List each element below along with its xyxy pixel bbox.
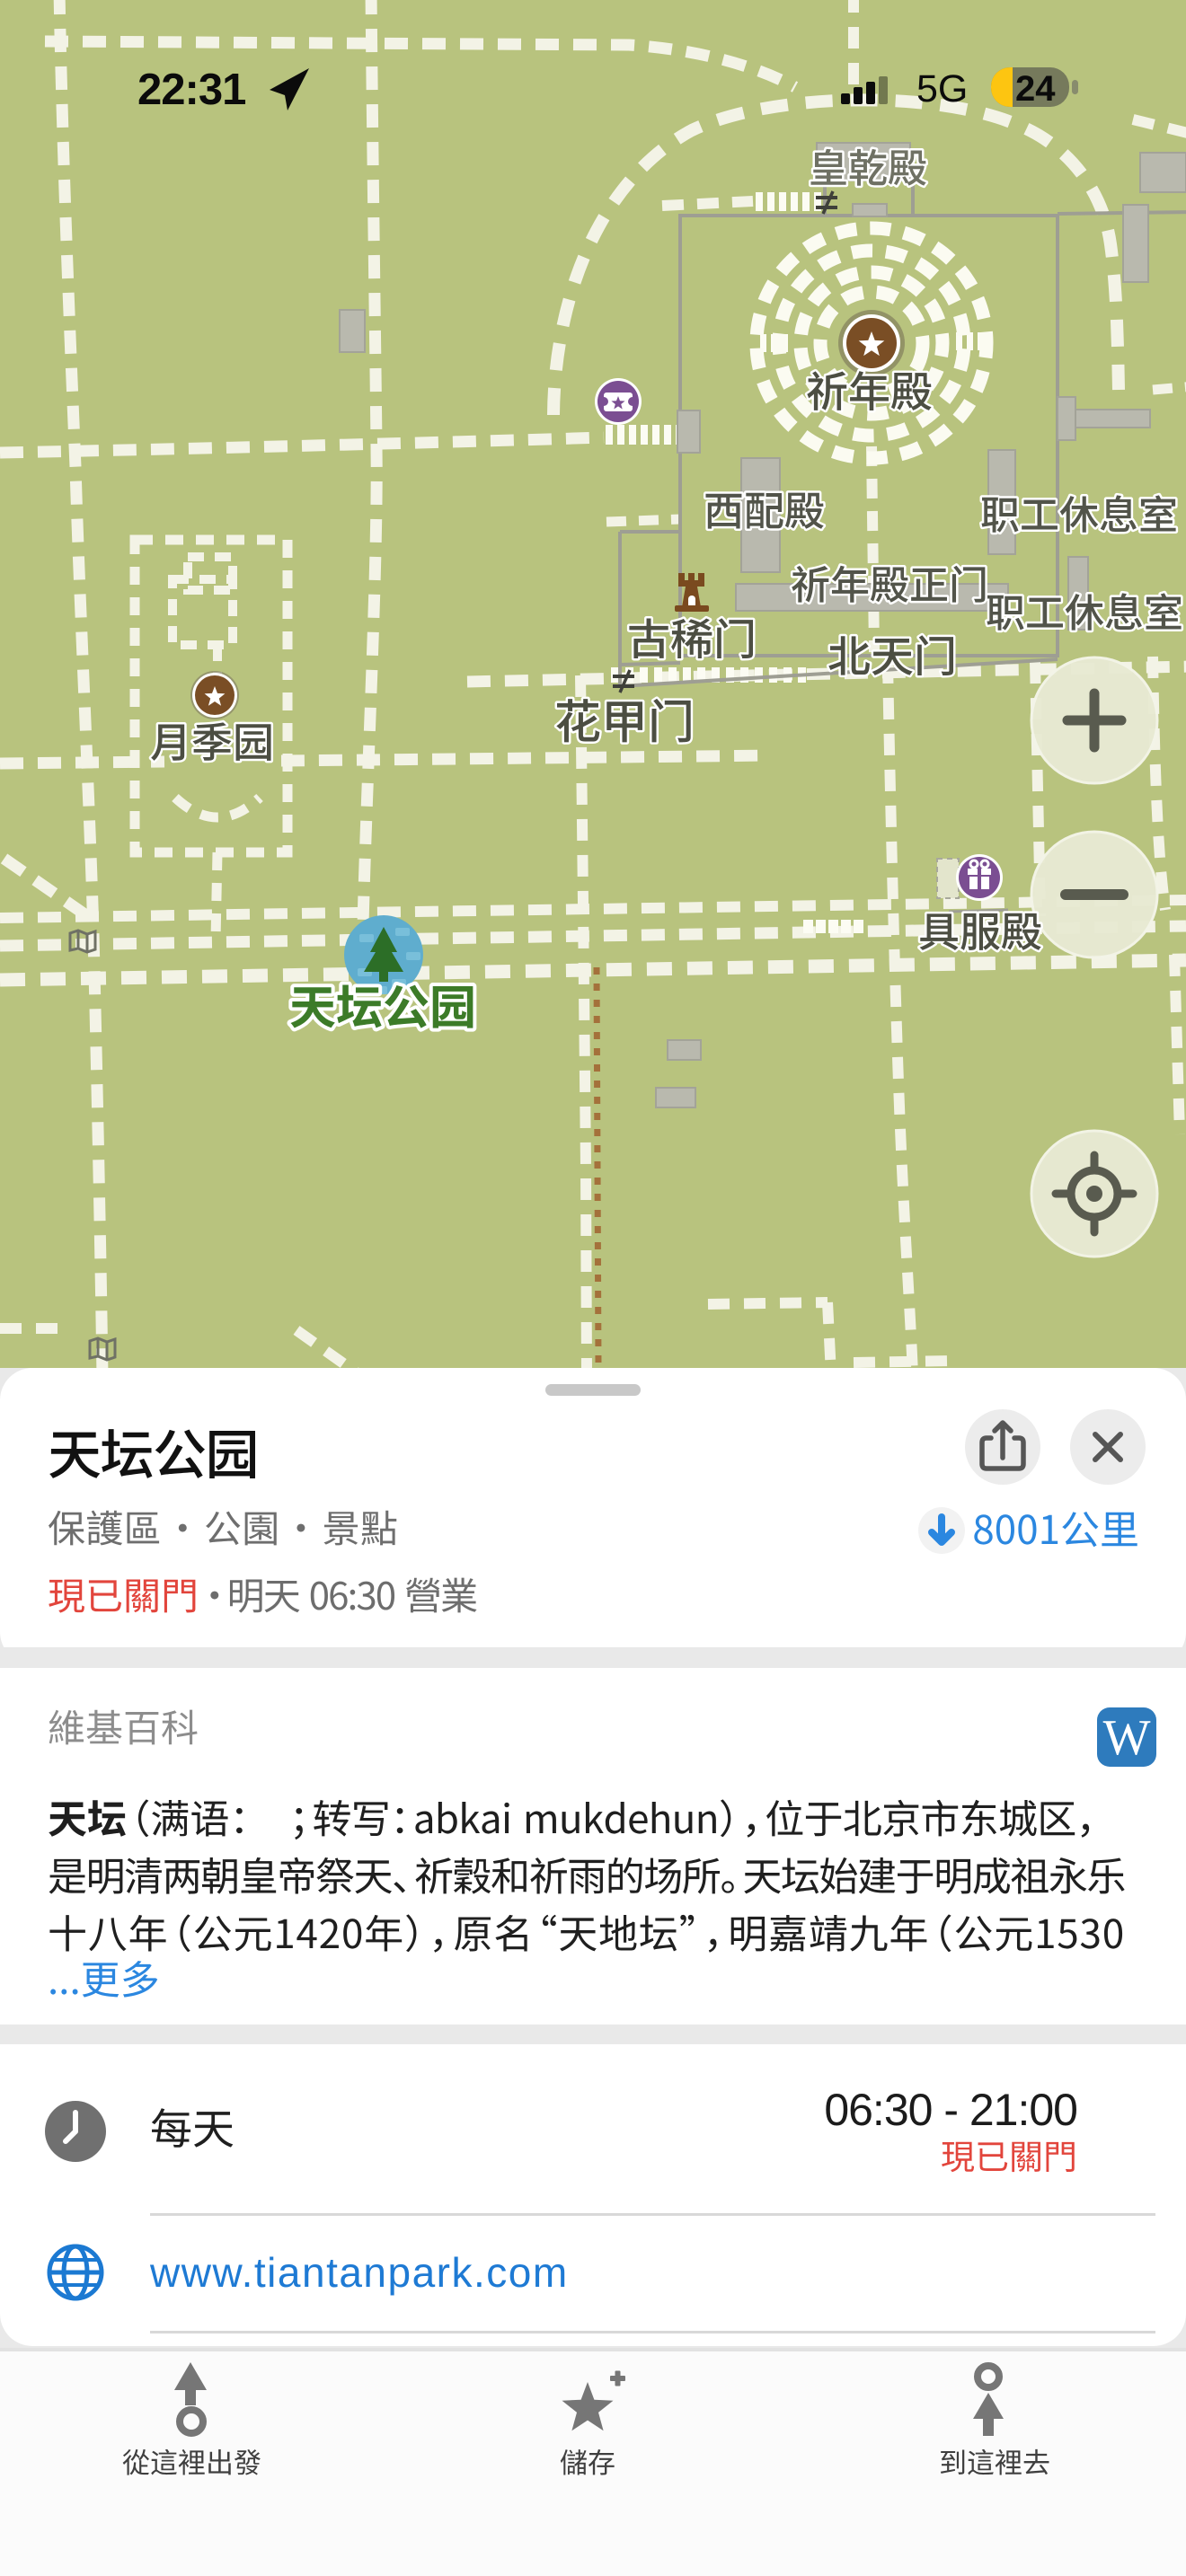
- svg-text:www.tiantanpark.com: www.tiantanpark.com: [149, 2249, 569, 2296]
- svg-text:22:31: 22:31: [137, 66, 245, 114]
- svg-text:06:30 - 21:00: 06:30 - 21:00: [824, 2085, 1077, 2135]
- svg-text:5G: 5G: [916, 67, 968, 110]
- svg-text:24: 24: [1015, 69, 1056, 109]
- svg-text:W: W: [1103, 1710, 1151, 1766]
